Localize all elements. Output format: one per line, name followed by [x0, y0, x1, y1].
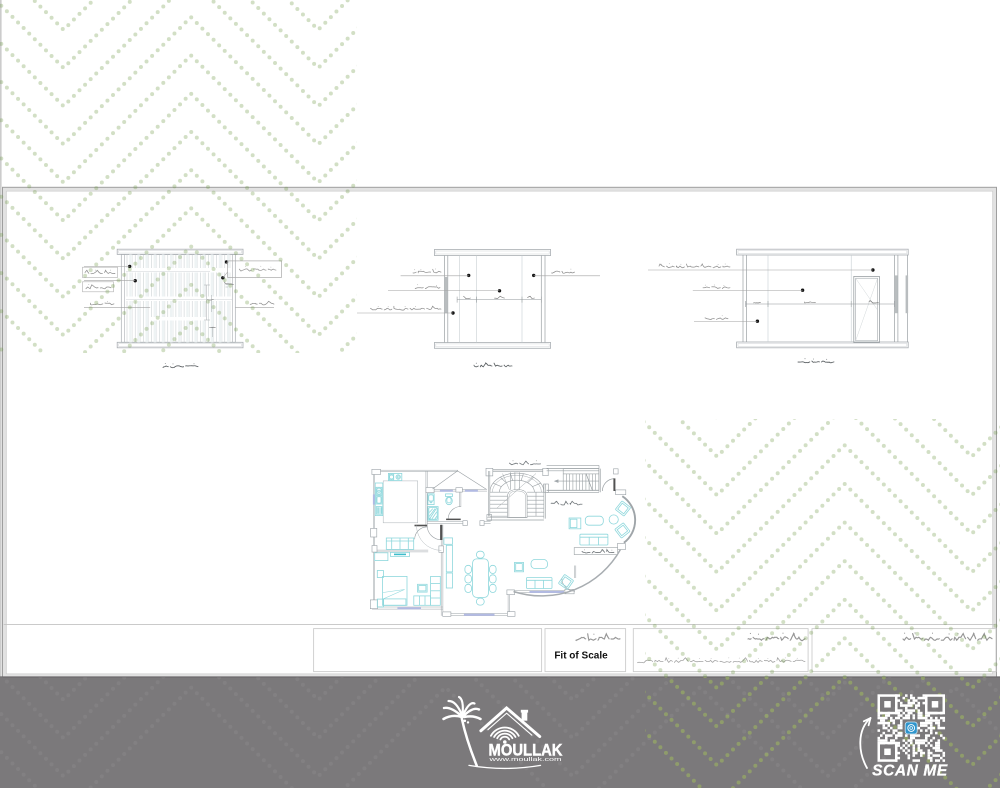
svg-text:SCAN ME: SCAN ME [872, 763, 948, 780]
svg-text:www.moullak.com: www.moullak.com [490, 757, 562, 763]
svg-text:Fit of Scale: Fit of Scale [554, 650, 608, 661]
